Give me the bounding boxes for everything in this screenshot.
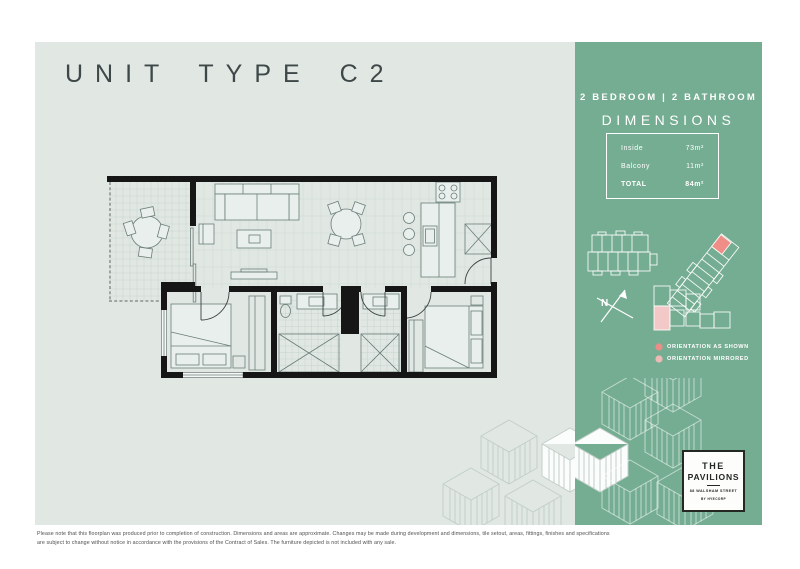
logo-line-the: THE <box>684 461 743 471</box>
legend-dot-icon <box>655 343 663 351</box>
dimensions-table: Inside 73m² Balcony 11m² TOTAL 84m² <box>606 133 719 199</box>
toilet-1 <box>280 296 291 304</box>
decorative-cubes-left <box>425 378 575 525</box>
site-plan-building-b <box>648 224 748 340</box>
dining-table <box>328 201 366 246</box>
vanity-2 <box>363 294 399 309</box>
logo-byline: BY HYECORP <box>684 497 743 501</box>
sofa <box>215 184 299 220</box>
sliding-door <box>191 228 194 266</box>
legend-row-mirrored: ORIENTATION MIRRORED <box>655 353 749 365</box>
dimension-value: 73m² <box>686 145 704 152</box>
floorplan-panel: UNIT TYPE C2 <box>35 42 575 525</box>
tv-unit <box>231 272 277 279</box>
north-compass: N <box>591 284 639 332</box>
wardrobe-1 <box>249 296 265 370</box>
dimension-value: 84m² <box>685 181 704 188</box>
vanity-1 <box>297 294 337 309</box>
unit-highlight-as-shown <box>712 235 731 255</box>
armchair <box>199 224 214 244</box>
dimension-row-balcony: Balcony 11m² <box>621 163 704 170</box>
dimension-label: Inside <box>621 145 643 152</box>
logo-address: 88 WALSHAM STREET <box>684 489 743 493</box>
unit-highlight-mirrored <box>654 306 670 330</box>
disclaimer: Please note that this floorplan was prod… <box>37 530 610 547</box>
wardrobe-2 <box>409 320 423 372</box>
legend-row-as-shown: ORIENTATION AS SHOWN <box>655 341 749 353</box>
page-title: UNIT TYPE C2 <box>65 60 396 89</box>
orientation-legend: ORIENTATION AS SHOWN ORIENTATION MIRRORE… <box>655 341 749 365</box>
disclaimer-line-2: are subject to change without notice in … <box>37 539 610 548</box>
unit-configuration: 2 BEDROOM | 2 BATHROOM <box>575 92 762 103</box>
bedroom-1 <box>171 296 265 370</box>
legend-dot-icon <box>655 355 663 363</box>
disclaimer-line-1: Please note that this floorplan was prod… <box>37 530 610 539</box>
dimension-value: 11m² <box>686 163 704 170</box>
bed-2 <box>425 306 483 368</box>
logo-divider <box>707 485 720 486</box>
coffee-table <box>237 230 271 248</box>
cooktop <box>436 182 460 202</box>
north-arrow-icon <box>619 290 627 299</box>
legend-label: ORIENTATION MIRRORED <box>667 356 749 362</box>
bedroom-2 <box>409 296 483 372</box>
legend-label: ORIENTATION AS SHOWN <box>667 344 749 350</box>
floor-plan <box>103 170 499 392</box>
logo-line-pavilions: PAVILIONS <box>684 472 743 482</box>
stool <box>404 213 415 224</box>
dimension-row-total: TOTAL 84m² <box>621 181 704 188</box>
dimensions-heading: DIMENSIONS <box>575 112 762 128</box>
dimension-label: TOTAL <box>621 181 647 188</box>
dimension-label: Balcony <box>621 163 650 170</box>
kitchen <box>404 182 493 277</box>
dimension-row-inside: Inside 73m² <box>621 145 704 152</box>
compass-north-label: N <box>601 298 608 309</box>
brochure-page: UNIT TYPE C2 <box>0 0 800 569</box>
sidebar: 2 BEDROOM | 2 BATHROOM DIMENSIONS Inside… <box>575 42 762 525</box>
pavilions-logo: THE PAVILIONS 88 WALSHAM STREET BY HYECO… <box>682 450 745 512</box>
